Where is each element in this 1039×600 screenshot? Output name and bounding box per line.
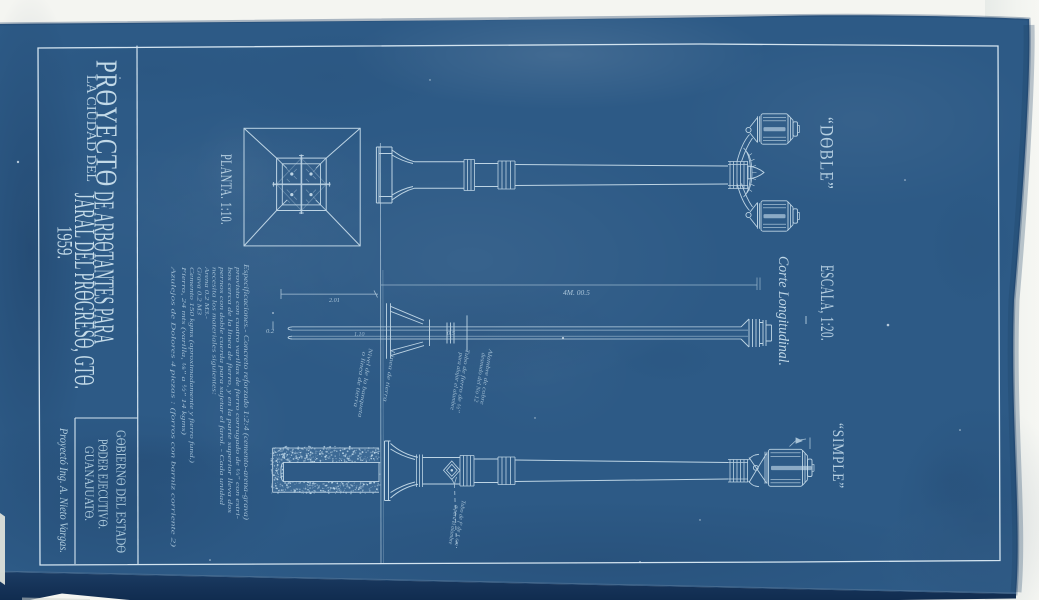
svg-text:necesita los materiales siguie: necesita los materiales siguientes: [211, 267, 218, 395]
svg-text:Grava 0.2 M3: Grava 0.2 M3 [196, 267, 203, 315]
svg-text:2.01: 2.01 [329, 297, 340, 304]
svg-text:ESCALA, 1:20.: ESCALA, 1:20. [816, 265, 836, 341]
svg-text:Fierro, 24 mts (varilla, ⅛" a: Fierro, 24 mts (varilla, ⅛" a ½" 14 kgms… [180, 265, 187, 435]
svg-text:GӨBIERNӨ DEL ESTADӨ: GӨBIERNӨ DEL ESTADӨ [113, 430, 128, 553]
svg-text:provisto con cuatro varillas d: provisto con cuatro varillas de fierro c… [234, 265, 241, 519]
svg-text:bos cerca de la linea de fierr: bos cerca de la linea de fierro, y en la… [226, 267, 233, 514]
svg-text:LA CIUDAD DEL: LA CIUDAD DEL [84, 75, 99, 182]
svg-text:Azulejos de Dolores 4 piezas: Azulejos de Dolores 4 piezas : (forros c… [170, 265, 177, 547]
svg-text:4M. 00.5: 4M. 00.5 [563, 288, 590, 297]
svg-text:“DӨBLE”: “DӨBLE” [816, 117, 837, 190]
svg-text:GUANAJUATӨ.: GUANAJUATӨ. [82, 446, 96, 521]
svg-text:0.5: 0.5 [447, 330, 456, 337]
svg-text:pernos con doble cuerda para s: pernos con doble cuerda para sujetar el … [218, 265, 225, 506]
svg-text:“SIMPLE”: “SIMPLE” [829, 423, 846, 489]
svg-text:1.10: 1.10 [354, 332, 365, 338]
svg-text:0.2: 0.2 [266, 328, 275, 335]
svg-text:Cemento 150 kgms (aproximadame: Cemento 150 kgms (aproximadamente y fier… [188, 267, 195, 463]
svg-text:JARAL DEL PRӨGRESӨ, GTӨ.: JARAL DEL PRӨGRESӨ, GTӨ. [68, 193, 100, 389]
svg-text:Especificaciones.- Concreto re: Especificaciones.- Concreto reforzado 1:… [242, 263, 250, 521]
svg-text:Proyectó Ing. A. Nieto Vargas: Proyectó Ing. A. Nieto Vargas. [57, 427, 71, 553]
svg-text:Corte Longitudinal.: Corte Longitudinal. [775, 256, 791, 366]
svg-text:Arena 0.2 M3.-: Arena 0.2 M3.- [203, 266, 210, 319]
svg-text:PLANTA. 1:10.: PLANTA. 1:10. [217, 154, 234, 225]
svg-text:1959.: 1959. [53, 226, 78, 259]
